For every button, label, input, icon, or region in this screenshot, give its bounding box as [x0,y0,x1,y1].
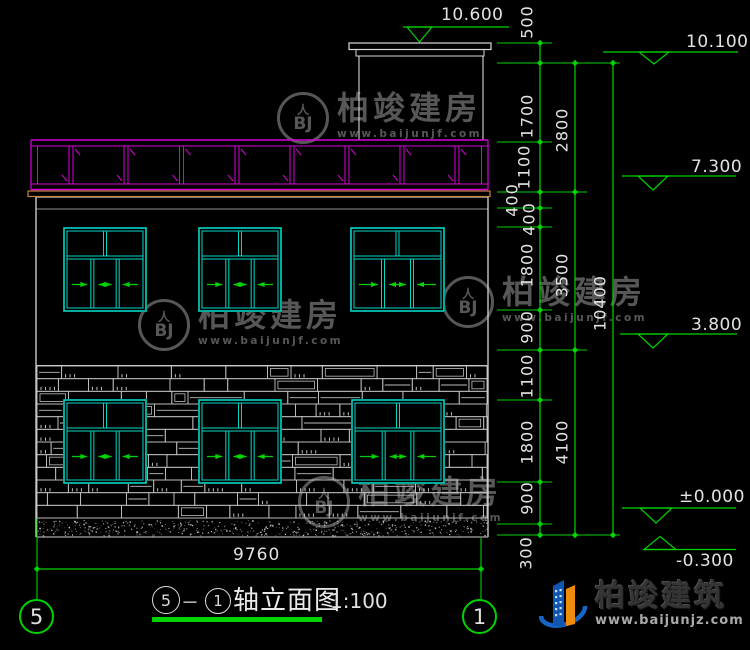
elevation-drawing [0,0,750,650]
elevation-label-tower-roof: 10.600 [441,5,503,25]
dim-1800-a: 1800 [518,243,537,288]
dim-900-a: 900 [518,310,537,344]
dim-overall-width: 9760 [233,545,280,565]
dim-400-b: 400 [520,202,539,236]
dim-900-b: 900 [518,481,537,515]
footer-logo-icon [537,574,589,636]
elevation-label-ground: ±0.000 [679,487,745,507]
title-axis-from: 5 [161,591,171,610]
title-axis-circle-to: 1 [205,588,231,614]
footer-logo: 柏竣建筑 www.baijunjz.com [537,574,744,636]
dim-total-height: 10400 [591,275,610,331]
title-separator: － [181,589,199,615]
axis-bubble-right: 1 [462,599,497,634]
footer-brand: 柏竣建筑 [595,582,744,612]
title-axis-to: 1 [213,592,223,610]
dim-floor-3500: 3500 [553,253,572,298]
dim-300: 300 [517,536,536,570]
footer-url: www.baijunjz.com [595,613,744,628]
cad-elevation-screen: 人 BJ 柏竣建房 www.baijunjf.com 人 BJ 柏竣建房 www… [0,0,750,650]
drawing-scale: 1:100 [330,589,388,613]
dim-1800-b: 1800 [518,420,537,465]
dim-1100-b: 1100 [518,354,537,399]
dim-floor-2800: 2800 [553,108,572,153]
title-axis-circle-from: 5 [152,586,180,614]
elevation-label-upper-floor: 7.300 [691,157,742,177]
elevation-label-second-floor: 3.800 [691,315,742,335]
axis-number-left: 5 [30,605,43,629]
elevation-label-roof: 10.100 [686,32,748,52]
dim-500: 500 [518,5,537,39]
axis-number-right: 1 [473,605,486,629]
axis-bubble-left: 5 [19,599,54,634]
dim-1700: 1700 [518,94,537,139]
drawing-title: 轴立面图 [233,580,341,617]
dim-floor-4100: 4100 [553,420,572,465]
title-underline [152,617,322,622]
elevation-label-below-ground: -0.300 [676,551,734,571]
